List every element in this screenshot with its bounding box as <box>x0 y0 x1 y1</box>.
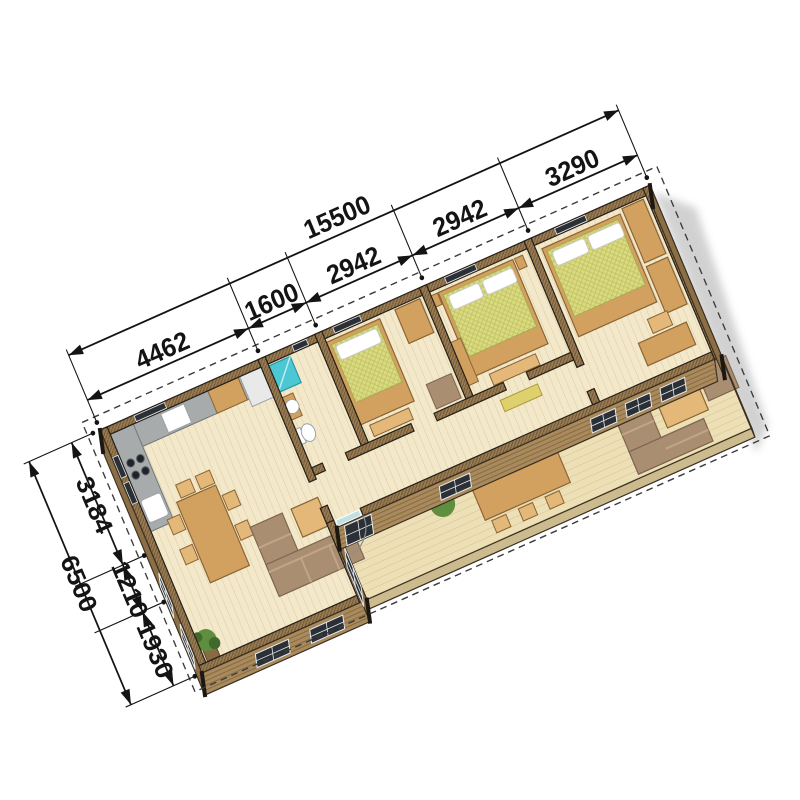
dimension-dot <box>94 419 100 425</box>
dimension-dot <box>525 227 531 233</box>
dimension-segment-label: 3184 <box>70 473 118 539</box>
dimension-dot <box>313 322 319 328</box>
dimension-dot <box>419 275 425 281</box>
dimension-segment-label: 2942 <box>429 194 491 243</box>
floor-plan-page: 4462160029422942329015500318412101930650… <box>0 0 800 800</box>
dimension-dot <box>90 430 96 436</box>
dimension-line <box>24 433 93 464</box>
dimension-total-label: 15500 <box>300 190 375 245</box>
dimension-segment-label: 3290 <box>541 144 603 193</box>
dimension-dot <box>644 174 650 180</box>
dimension-line <box>126 676 195 707</box>
dimension-line <box>66 350 97 423</box>
dimension-line <box>391 205 422 278</box>
floor-plan-canvas: 4462160029422942329015500318412101930650… <box>0 0 800 800</box>
dimension-segment-label: 4462 <box>131 326 193 375</box>
dimension-dot <box>255 348 261 354</box>
dimension-segment-label: 2942 <box>323 241 385 290</box>
dimension-line <box>497 158 528 231</box>
dimension-total-label: 6500 <box>54 551 102 616</box>
dimension-segment-label: 1930 <box>131 618 179 683</box>
dimension-segment-label: 1210 <box>105 557 153 622</box>
dimension-line <box>616 105 647 178</box>
dimension-segment-label: 1600 <box>241 278 303 327</box>
